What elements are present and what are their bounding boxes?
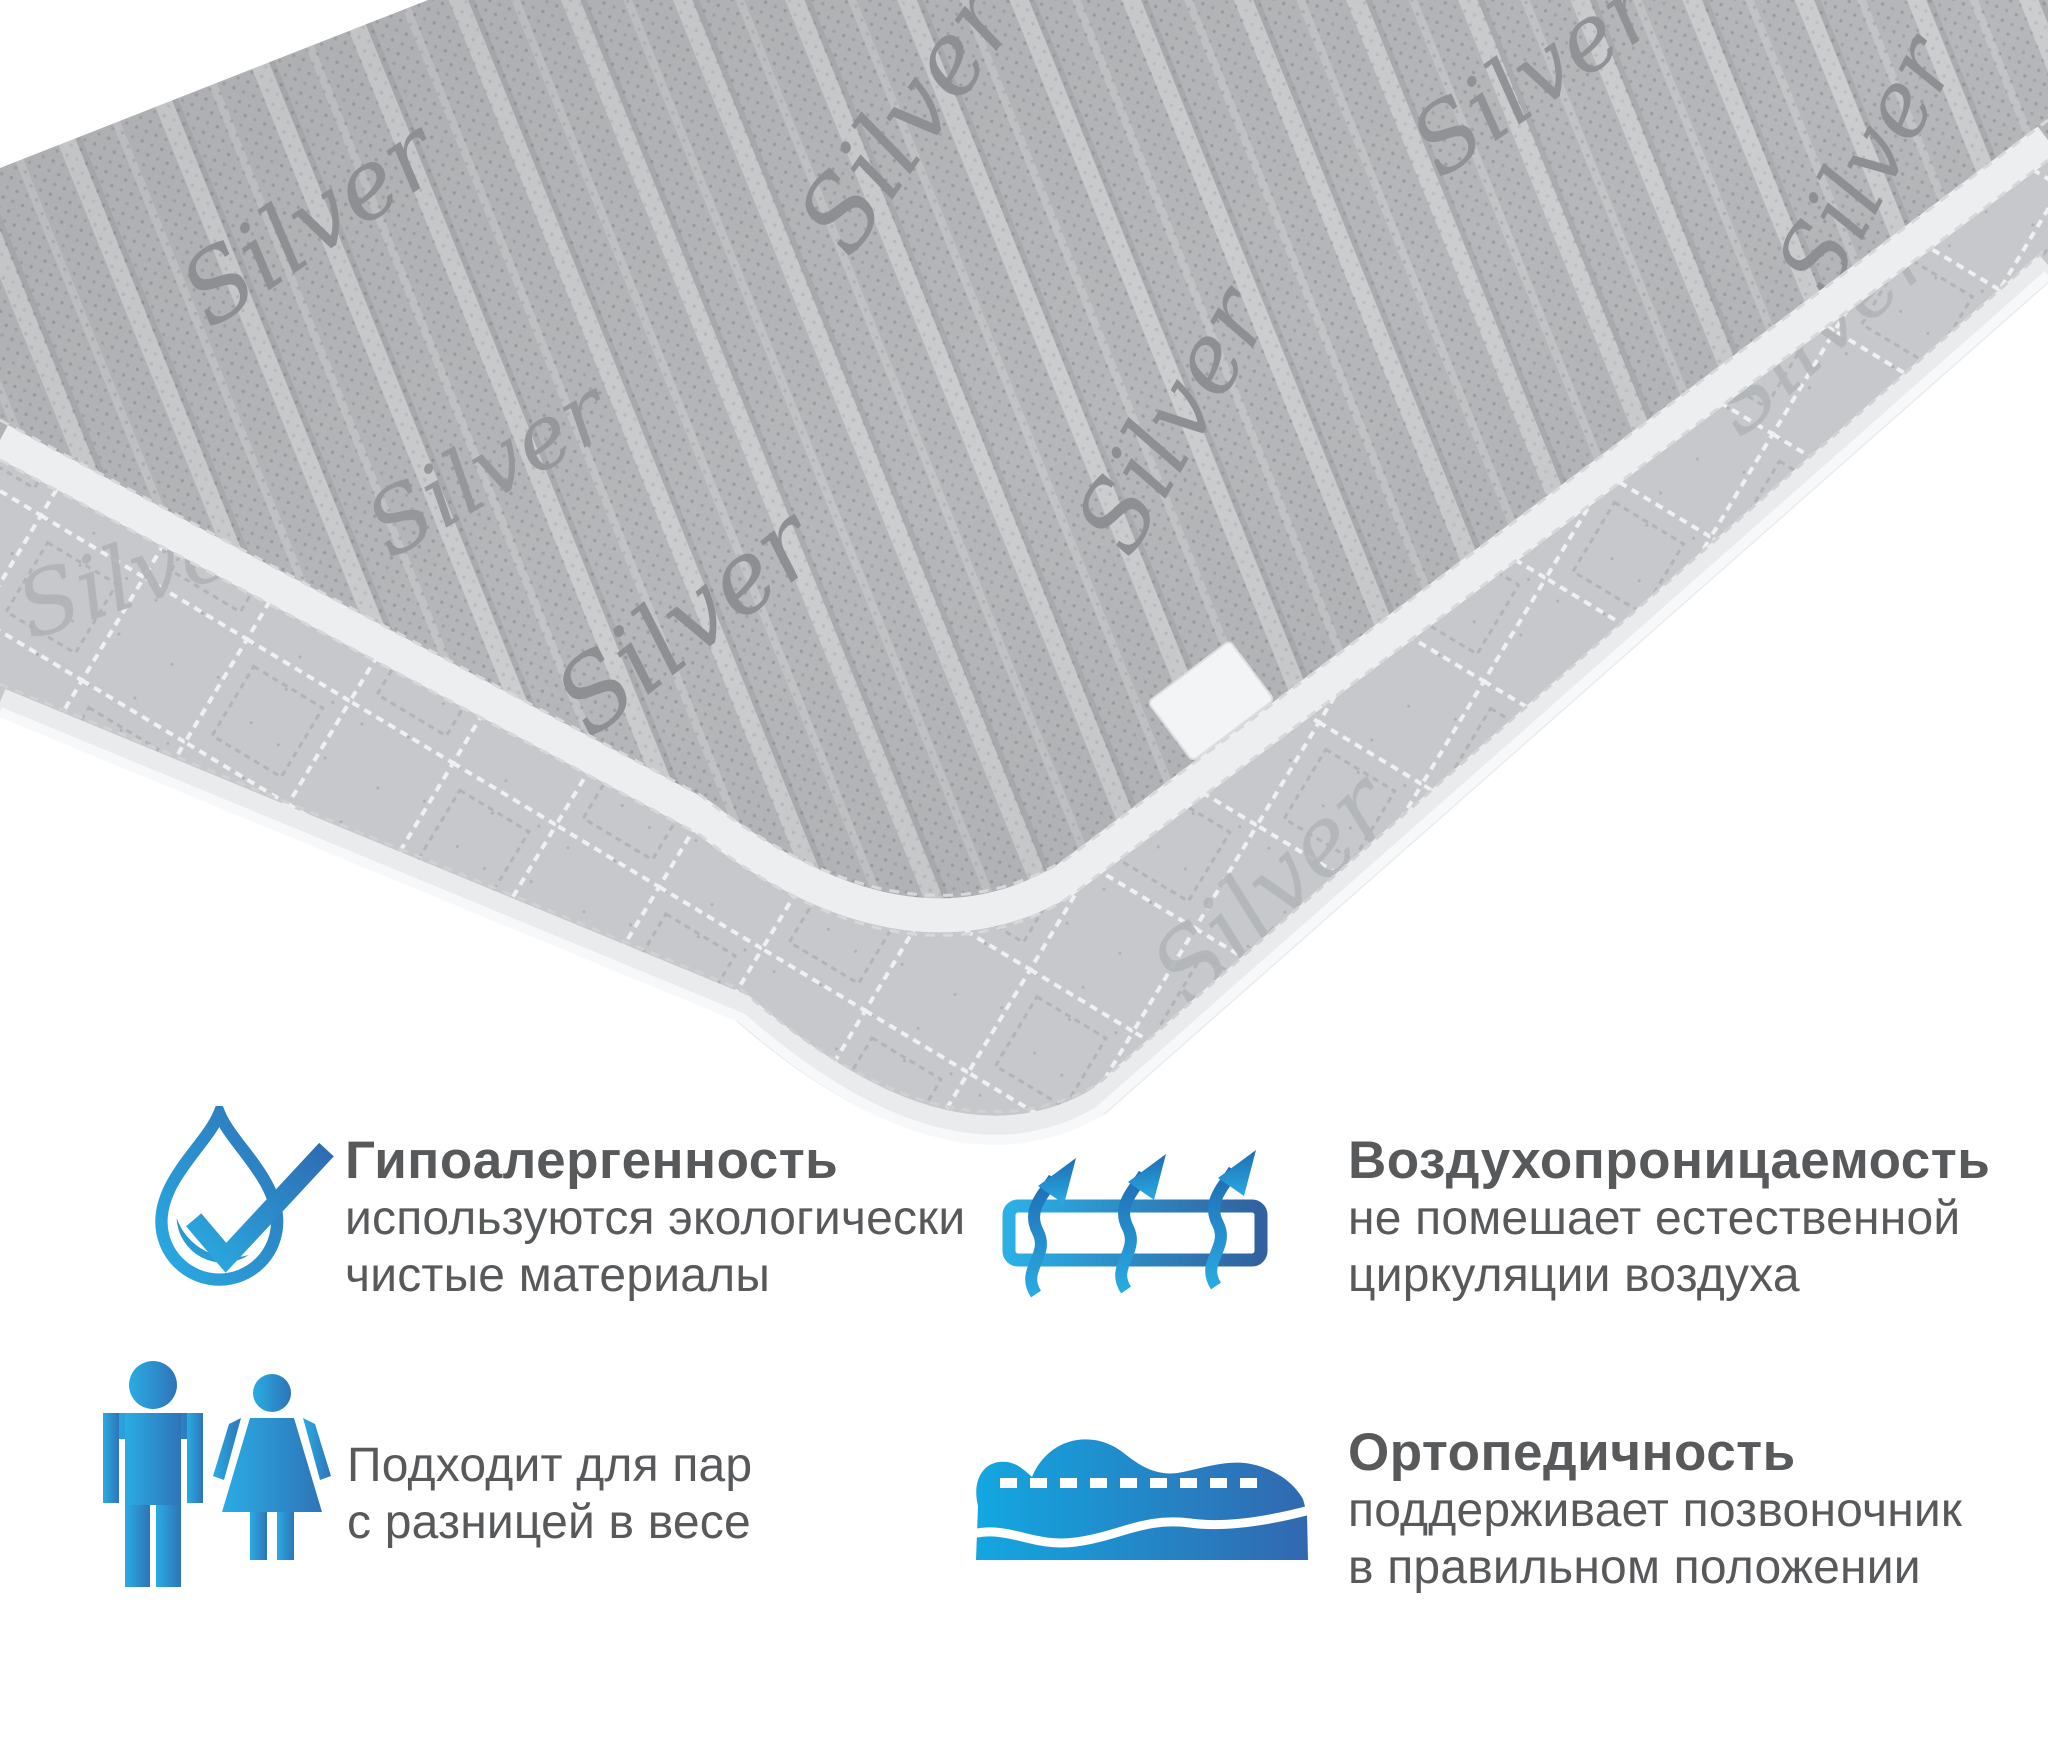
feature-line: поддерживает позвоночник (1348, 1482, 1962, 1539)
feature-line: в правильном положении (1348, 1539, 1962, 1596)
feature-line: циркуляции воздуха (1348, 1247, 1990, 1304)
feature-line: используются экологически (345, 1190, 965, 1247)
feature-couples: Подходит для пар с разницей в весе (347, 1437, 752, 1551)
water-drop-check-icon (148, 1106, 338, 1291)
feature-line: Подходит для пар (347, 1437, 752, 1494)
sleeping-person-icon (972, 1420, 1324, 1562)
feature-title: Гипоалергенность (345, 1132, 965, 1190)
feature-breathability: Воздухопроницаемость не помешает естеств… (1348, 1132, 1990, 1304)
man-woman-icon (100, 1360, 340, 1595)
feature-orthopedic: Ортопедичность поддерживает позвоночник … (1348, 1424, 1962, 1596)
feature-title: Ортопедичность (1348, 1424, 1962, 1482)
product-infographic: Silver Silver Silver Silver Silver Silve… (0, 0, 2048, 1758)
feature-hypoallergenic: Гипоалергенность используются экологичес… (345, 1132, 965, 1304)
airflow-arrows-icon (1002, 1146, 1276, 1302)
woman-figure (213, 1374, 331, 1560)
feature-line: чистые материалы (345, 1247, 965, 1304)
feature-line: не помешает естественной (1348, 1190, 1990, 1247)
mattress-photo: Silver Silver Silver Silver Silver Silve… (0, 0, 2048, 1170)
feature-line: с разницей в весе (347, 1494, 752, 1551)
man-figure (103, 1361, 203, 1587)
feature-title: Воздухопроницаемость (1348, 1132, 1990, 1190)
